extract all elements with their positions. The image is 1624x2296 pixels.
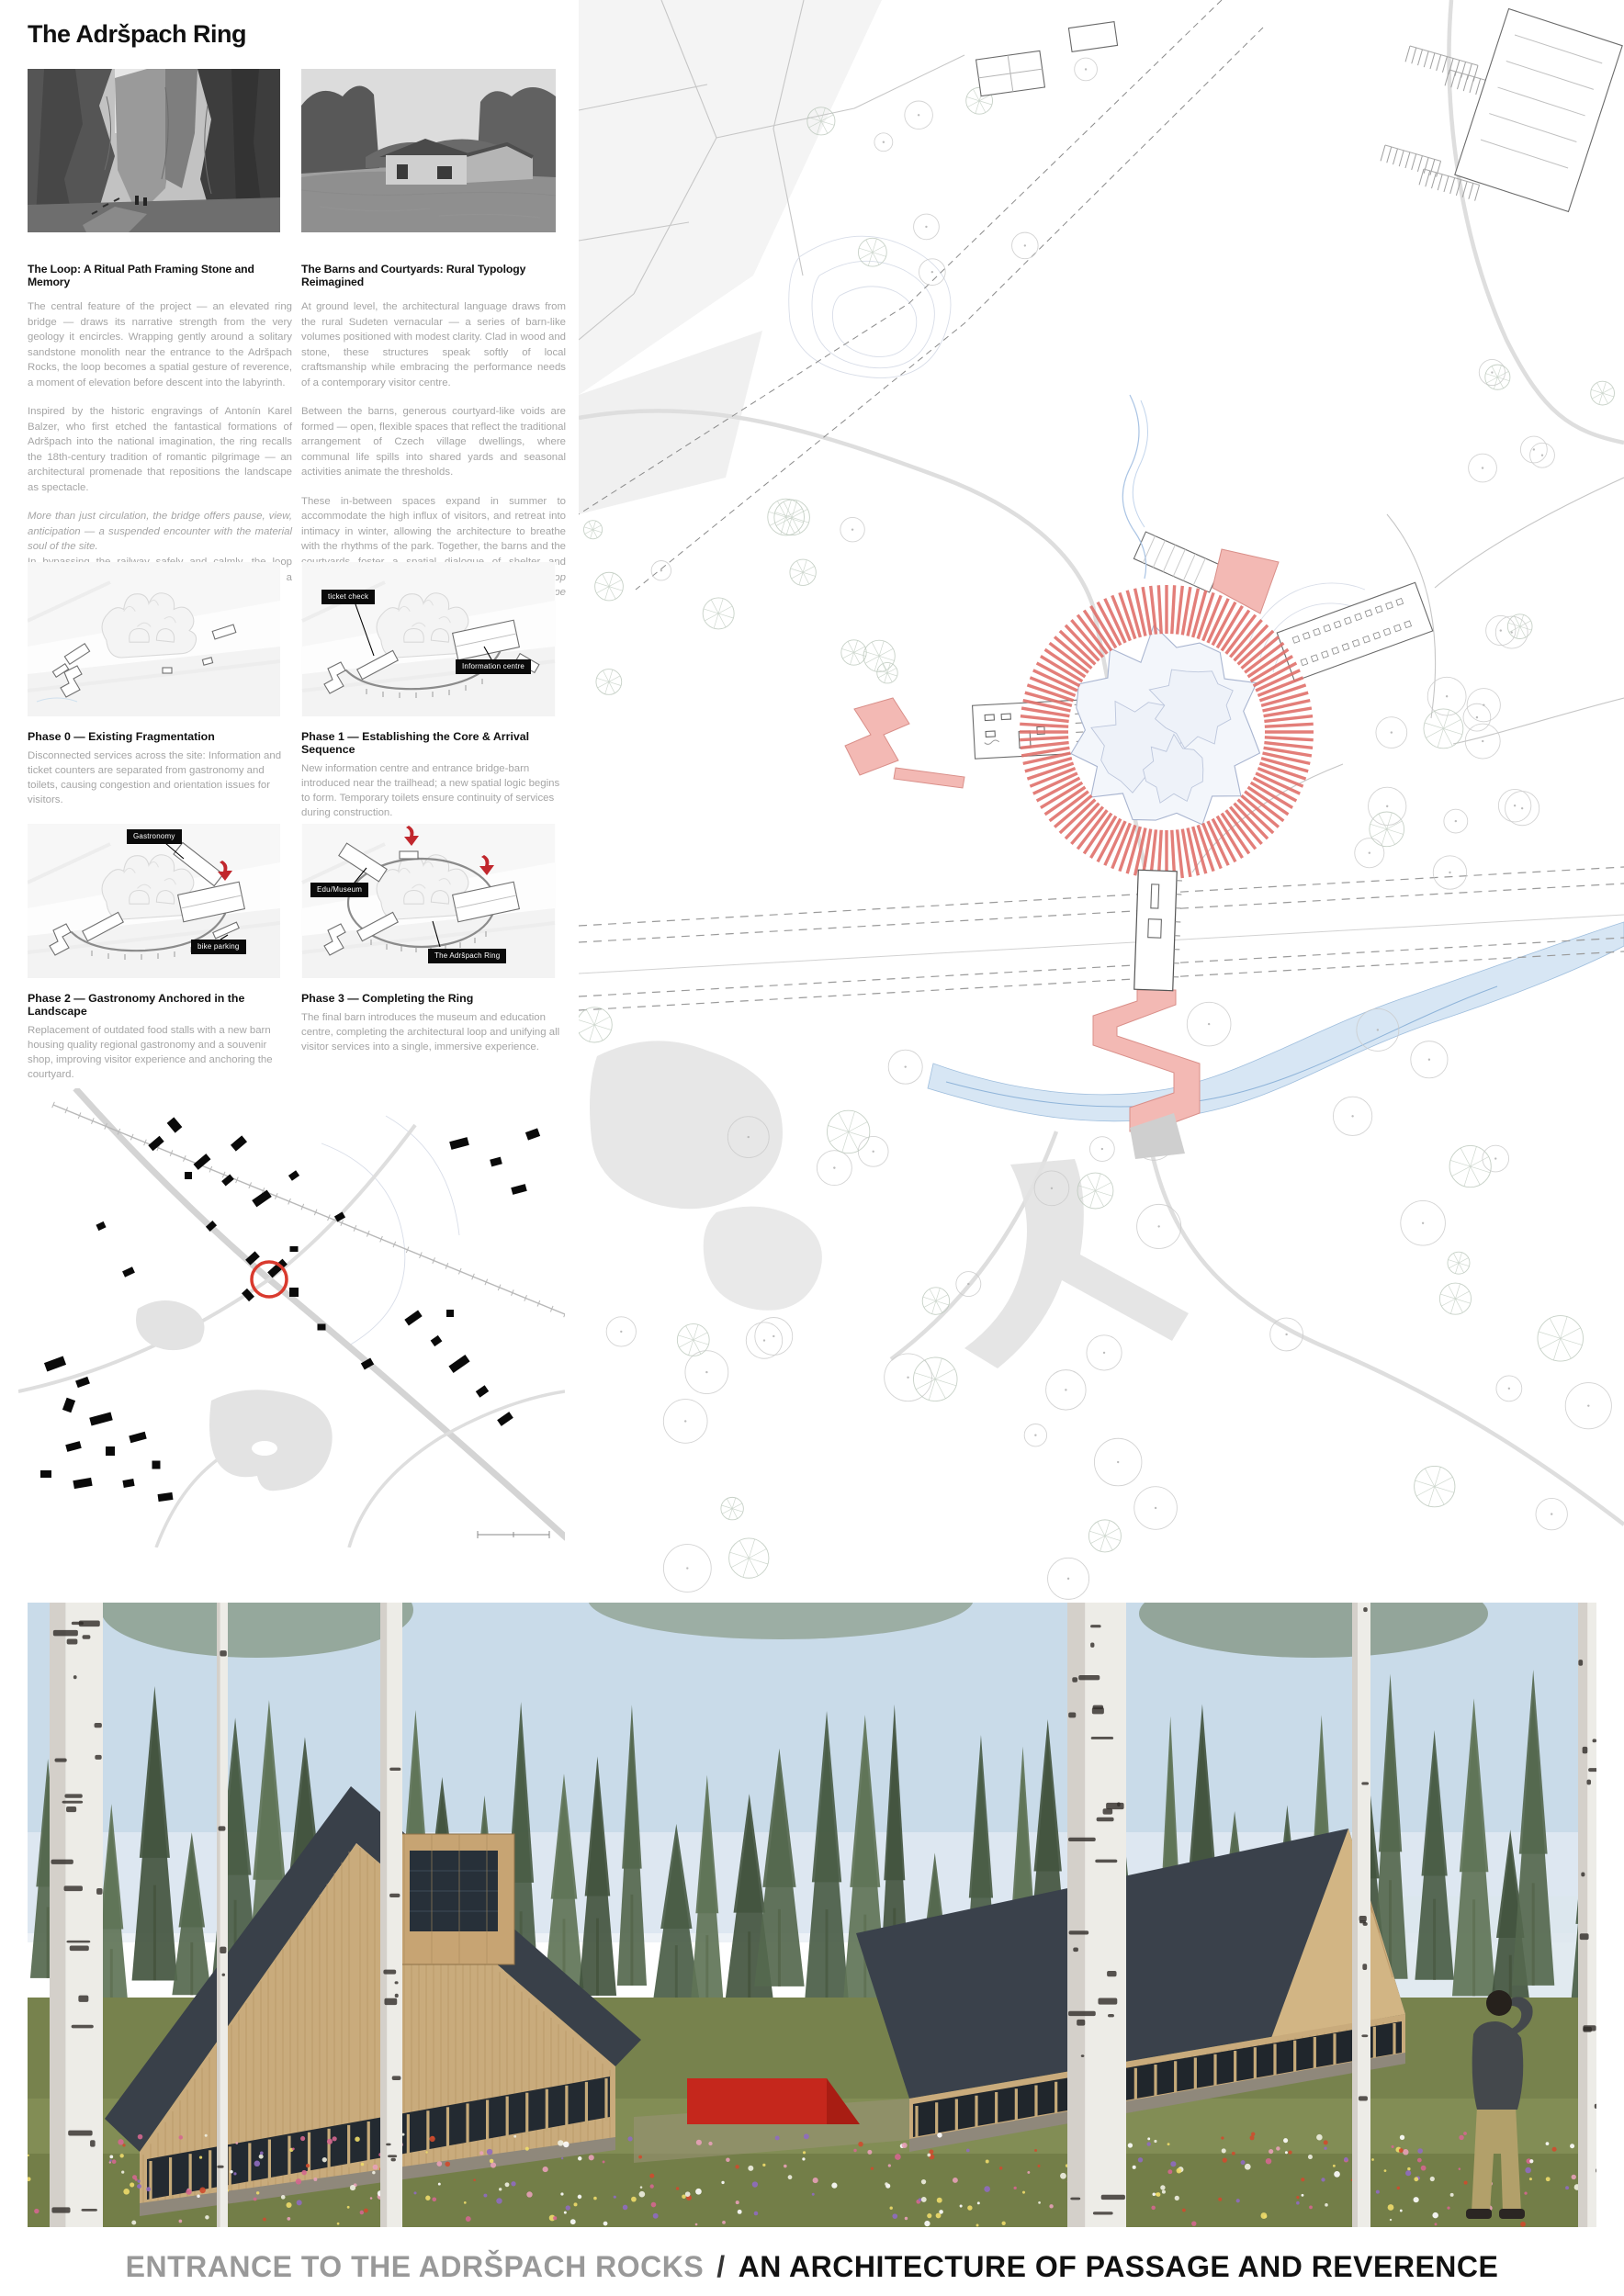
footer-separator: / [704,2250,738,2283]
pink-ramp-west [845,698,909,775]
site-location-map [18,1088,565,1548]
diagram-label: Edu/Museum [310,883,368,897]
diagram-label: Information centre [456,659,531,674]
phase-1-diagram: ticket check Information centre [301,562,556,716]
phase-body: Disconnected services across the site: I… [28,749,287,808]
engraving-photo [28,69,280,232]
phase-2-caption: Phase 2 — Gastronomy Anchored in the Lan… [28,992,287,1083]
trees [579,58,1614,1599]
column-heading-loop: The Loop: A Ritual Path Framing Stone an… [28,263,292,288]
phase-title: Phase 3 — Completing the Ring [301,992,560,1005]
pond-area [590,1041,822,1310]
page-title: The Adršpach Ring [28,20,246,49]
footer-location: ENTRANCE TO THE ADRŠPACH ROCKS [126,2250,705,2283]
phase-1-caption: Phase 1 — Establishing the Core & Arriva… [301,730,560,821]
footer-tagline: AN ARCHITECTURE OF PASSAGE AND REVERENCE [739,2250,1499,2283]
diagram-label: The Adršpach Ring [428,949,506,963]
stream [928,922,1624,1121]
phase-body: The final barn introduces the museum and… [301,1011,560,1055]
phase-title: Phase 1 — Establishing the Core & Arriva… [301,730,560,756]
barn-photo-art [301,69,556,232]
column-body-loop: The central feature of the project — an … [28,299,292,601]
head [1486,1990,1512,2016]
railway-line [52,1102,565,1317]
diagram-label: Gastronomy [127,829,182,844]
engraving-art [28,69,280,232]
diagram-label: ticket check [321,590,375,604]
render-view [28,1603,1596,2227]
phase-3-caption: Phase 3 — Completing the Ring The final … [301,992,560,1055]
gravel-path [964,1159,1189,1368]
gastronomy-barn [1133,532,1221,592]
phase-3-diagram: Edu/Museum The Adršpach Ring [301,824,556,978]
presentation-board: The Adršpach Ring [0,0,1624,2296]
phase-title: Phase 0 — Existing Fragmentation [28,730,287,743]
diagram-label: bike parking [191,940,246,954]
column-heading-barns: The Barns and Courtyards: Rural Typology… [301,263,566,288]
museum-barn [1277,582,1433,681]
phase-body: New information centre and entrance brid… [301,762,560,821]
barn-photo [301,69,556,232]
phase-title: Phase 2 — Gastronomy Anchored in the Lan… [28,992,287,1018]
terrain-contours [789,236,951,377]
phase-0-caption: Phase 0 — Existing Fragmentation Disconn… [28,730,287,808]
pink-terrace [1212,549,1279,613]
scale-bar [478,1531,549,1538]
phase-2-diagram: Gastronomy bike parking [28,824,280,978]
buildings [845,9,1622,788]
phase-body: Replacement of outdated food stalls with… [28,1024,287,1083]
phase-0-diagram [28,562,280,716]
site-plan [579,0,1624,1603]
footer: ENTRANCE TO THE ADRŠPACH ROCKS/AN ARCHIT… [0,2250,1624,2284]
